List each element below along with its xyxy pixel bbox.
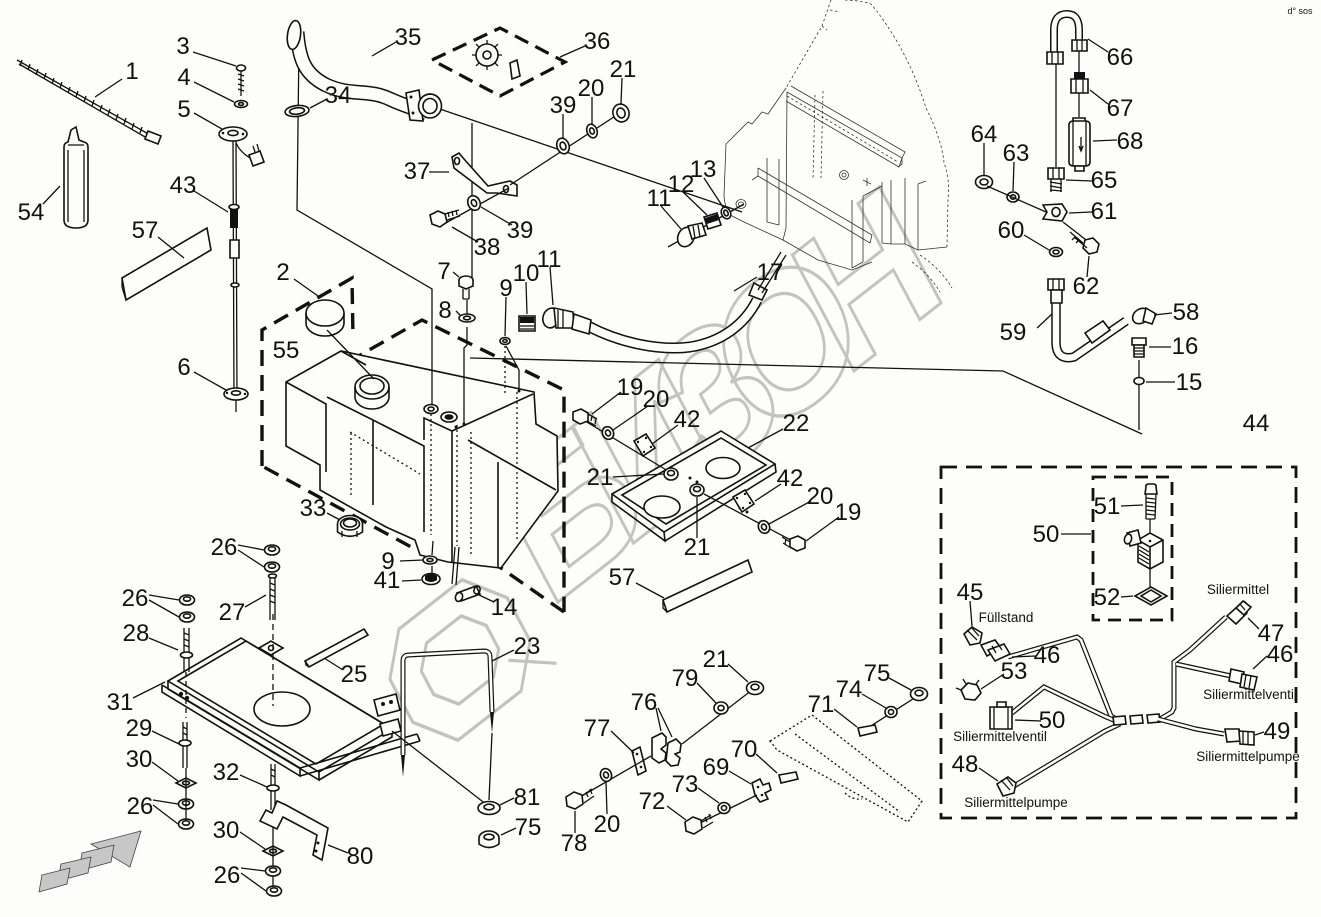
svg-text:76: 76 [631, 689, 658, 716]
svg-text:31: 31 [107, 689, 134, 716]
svg-text:42: 42 [777, 465, 804, 492]
svg-text:57: 57 [132, 217, 159, 244]
svg-text:74: 74 [836, 676, 863, 703]
svg-text:26: 26 [127, 793, 154, 820]
svg-text:38: 38 [474, 234, 501, 261]
svg-text:23: 23 [514, 633, 541, 660]
svg-text:42: 42 [674, 406, 701, 433]
svg-text:15: 15 [1176, 369, 1203, 396]
svg-text:32: 32 [213, 759, 240, 786]
svg-text:25: 25 [341, 661, 368, 688]
svg-text:44: 44 [1243, 410, 1270, 437]
svg-text:57: 57 [609, 564, 636, 591]
svg-text:Siliermittelpumpe: Siliermittelpumpe [1196, 749, 1300, 764]
svg-text:51: 51 [1094, 493, 1121, 520]
svg-text:46: 46 [1267, 641, 1294, 668]
svg-text:21: 21 [684, 534, 711, 561]
svg-text:28: 28 [123, 620, 150, 647]
svg-text:77: 77 [584, 715, 611, 742]
svg-text:53: 53 [1001, 658, 1028, 685]
svg-text:26: 26 [122, 585, 149, 612]
svg-text:37: 37 [404, 158, 431, 185]
svg-text:3: 3 [176, 33, 189, 60]
svg-text:11: 11 [537, 246, 562, 273]
svg-text:72: 72 [639, 788, 666, 815]
svg-text:52: 52 [1094, 584, 1121, 611]
svg-text:69: 69 [703, 754, 730, 781]
svg-text:7: 7 [437, 258, 450, 285]
svg-text:16: 16 [1172, 333, 1199, 360]
svg-text:39: 39 [507, 217, 534, 244]
svg-text:70: 70 [731, 736, 758, 763]
svg-text:75: 75 [515, 814, 542, 841]
svg-text:54: 54 [18, 199, 45, 226]
svg-text:20: 20 [807, 483, 834, 510]
svg-text:Siliermittel: Siliermittel [1207, 582, 1269, 597]
svg-text:20: 20 [578, 75, 605, 102]
svg-text:75: 75 [864, 660, 891, 687]
svg-text:1: 1 [125, 58, 138, 85]
svg-text:29: 29 [126, 715, 153, 742]
svg-text:19: 19 [617, 374, 644, 401]
svg-text:21: 21 [610, 56, 637, 83]
svg-text:26: 26 [214, 862, 241, 889]
svg-text:65: 65 [1091, 167, 1118, 194]
svg-text:5: 5 [177, 96, 190, 123]
svg-text:Füllstand: Füllstand [979, 610, 1034, 625]
svg-text:45: 45 [957, 579, 984, 606]
svg-text:61: 61 [1091, 198, 1118, 225]
svg-text:4: 4 [177, 64, 190, 91]
svg-text:20: 20 [594, 811, 621, 838]
svg-text:8: 8 [438, 297, 451, 324]
svg-text:21: 21 [703, 646, 730, 673]
svg-text:66: 66 [1107, 44, 1134, 71]
svg-text:d° sos: d° sos [1287, 6, 1313, 16]
svg-text:Siliermittelventil: Siliermittelventil [953, 729, 1047, 744]
svg-text:11: 11 [647, 185, 672, 212]
svg-text:79: 79 [672, 665, 699, 692]
svg-text:17: 17 [757, 259, 784, 286]
svg-text:80: 80 [347, 843, 374, 870]
svg-text:46: 46 [1034, 642, 1061, 669]
svg-text:2: 2 [276, 259, 289, 286]
svg-text:81: 81 [514, 784, 541, 811]
svg-text:43: 43 [170, 172, 197, 199]
svg-text:10: 10 [513, 260, 540, 287]
svg-text:78: 78 [561, 830, 588, 857]
svg-text:55: 55 [273, 337, 300, 364]
svg-text:Siliermittelventil: Siliermittelventil [1203, 687, 1297, 702]
svg-text:21: 21 [587, 464, 614, 491]
svg-text:26: 26 [211, 534, 238, 561]
svg-text:71: 71 [808, 691, 835, 718]
svg-text:63: 63 [1003, 140, 1030, 167]
svg-text:39: 39 [550, 92, 577, 119]
svg-text:36: 36 [584, 28, 611, 55]
svg-text:50: 50 [1033, 521, 1060, 548]
svg-text:48: 48 [952, 751, 979, 778]
svg-text:22: 22 [783, 410, 810, 437]
svg-text:14: 14 [491, 594, 518, 621]
svg-text:30: 30 [213, 817, 240, 844]
svg-text:33: 33 [300, 495, 327, 522]
svg-text:20: 20 [643, 386, 670, 413]
svg-text:34: 34 [325, 82, 352, 109]
svg-text:41: 41 [374, 567, 401, 594]
svg-text:35: 35 [395, 24, 422, 51]
svg-text:59: 59 [1000, 319, 1027, 346]
svg-text:12: 12 [668, 171, 695, 198]
svg-text:6: 6 [177, 354, 190, 381]
svg-text:58: 58 [1173, 299, 1200, 326]
svg-text:Siliermittelpumpe: Siliermittelpumpe [964, 795, 1068, 810]
svg-text:9: 9 [499, 275, 512, 302]
svg-text:27: 27 [219, 599, 246, 626]
svg-text:30: 30 [126, 746, 153, 773]
svg-text:49: 49 [1264, 718, 1291, 745]
svg-text:68: 68 [1117, 128, 1144, 155]
svg-text:64: 64 [971, 121, 998, 148]
svg-text:67: 67 [1107, 95, 1134, 122]
svg-text:19: 19 [835, 499, 862, 526]
svg-text:62: 62 [1073, 273, 1100, 300]
svg-text:60: 60 [998, 217, 1025, 244]
svg-text:73: 73 [672, 771, 699, 798]
